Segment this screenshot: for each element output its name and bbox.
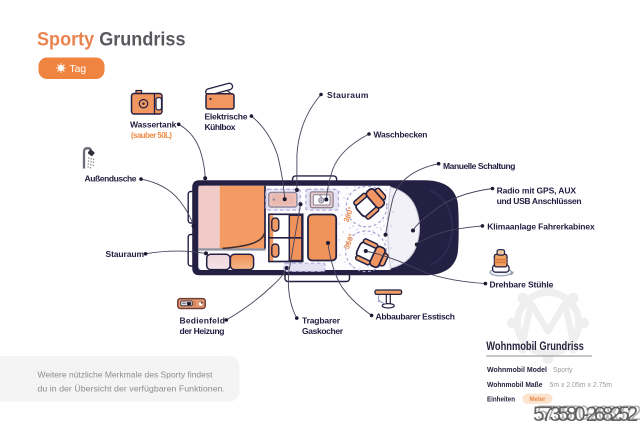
svg-text:Manuelle Schaltung: Manuelle Schaltung [443,161,516,171]
svg-text:Drehbare Stühle: Drehbare Stühle [490,279,554,289]
svg-text:Wohnmobil Maße: Wohnmobil Maße [487,380,543,389]
svg-text:Bedienfeld: Bedienfeld [180,316,225,326]
svg-text:Einheiten: Einheiten [487,395,515,404]
svg-text:(sauber 50L): (sauber 50L) [131,131,172,140]
svg-text:Waschbecken: Waschbecken [374,129,428,139]
svg-text:Kühlbox: Kühlbox [205,122,236,132]
svg-text:Elektrische: Elektrische [205,112,248,122]
svg-text:Stauraum: Stauraum [106,249,145,259]
svg-text:Stauraum: Stauraum [327,90,369,100]
svg-text:Wassertank: Wassertank [130,119,177,129]
svg-text:Klimaanlage Fahrerkabinex: Klimaanlage Fahrerkabinex [487,222,595,232]
svg-text:Wohnmobil Grundriss: Wohnmobil Grundriss [486,339,584,353]
svg-text:der Heizung: der Heizung [180,326,225,336]
svg-text:5m x 2.05m x 2.75m: 5m x 2.05m x 2.75m [550,380,613,389]
svg-text:Tragbarer: Tragbarer [302,316,341,326]
svg-text:und USB Anschlüssen: und USB Anschlüssen [497,196,582,206]
svg-text:573570-268372: 573570-268372 [537,402,640,425]
svg-text:Abbaubarer Esstisch: Abbaubarer Esstisch [376,312,456,322]
svg-text:Außendusche: Außendusche [85,174,137,184]
svg-text:Radio mit GPS, AUX: Radio mit GPS, AUX [497,185,577,195]
svg-text:Gaskocher: Gaskocher [302,326,344,336]
svg-text:Sporty: Sporty [553,365,573,374]
svg-text:Wohnmobil Model: Wohnmobil Model [487,365,547,374]
